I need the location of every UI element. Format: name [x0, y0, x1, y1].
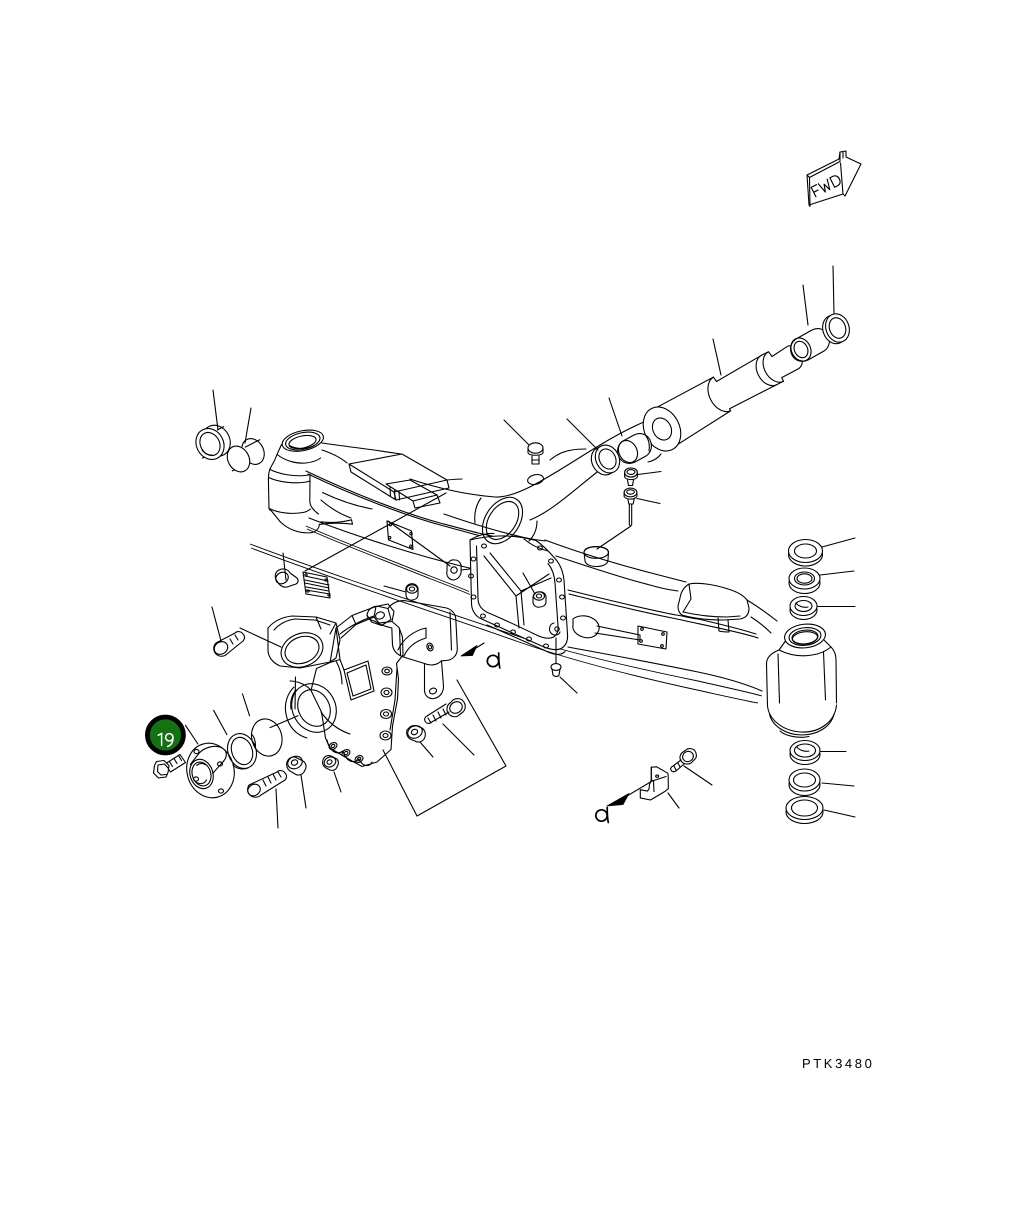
svg-text:PTK3480: PTK3480 [802, 1056, 874, 1071]
